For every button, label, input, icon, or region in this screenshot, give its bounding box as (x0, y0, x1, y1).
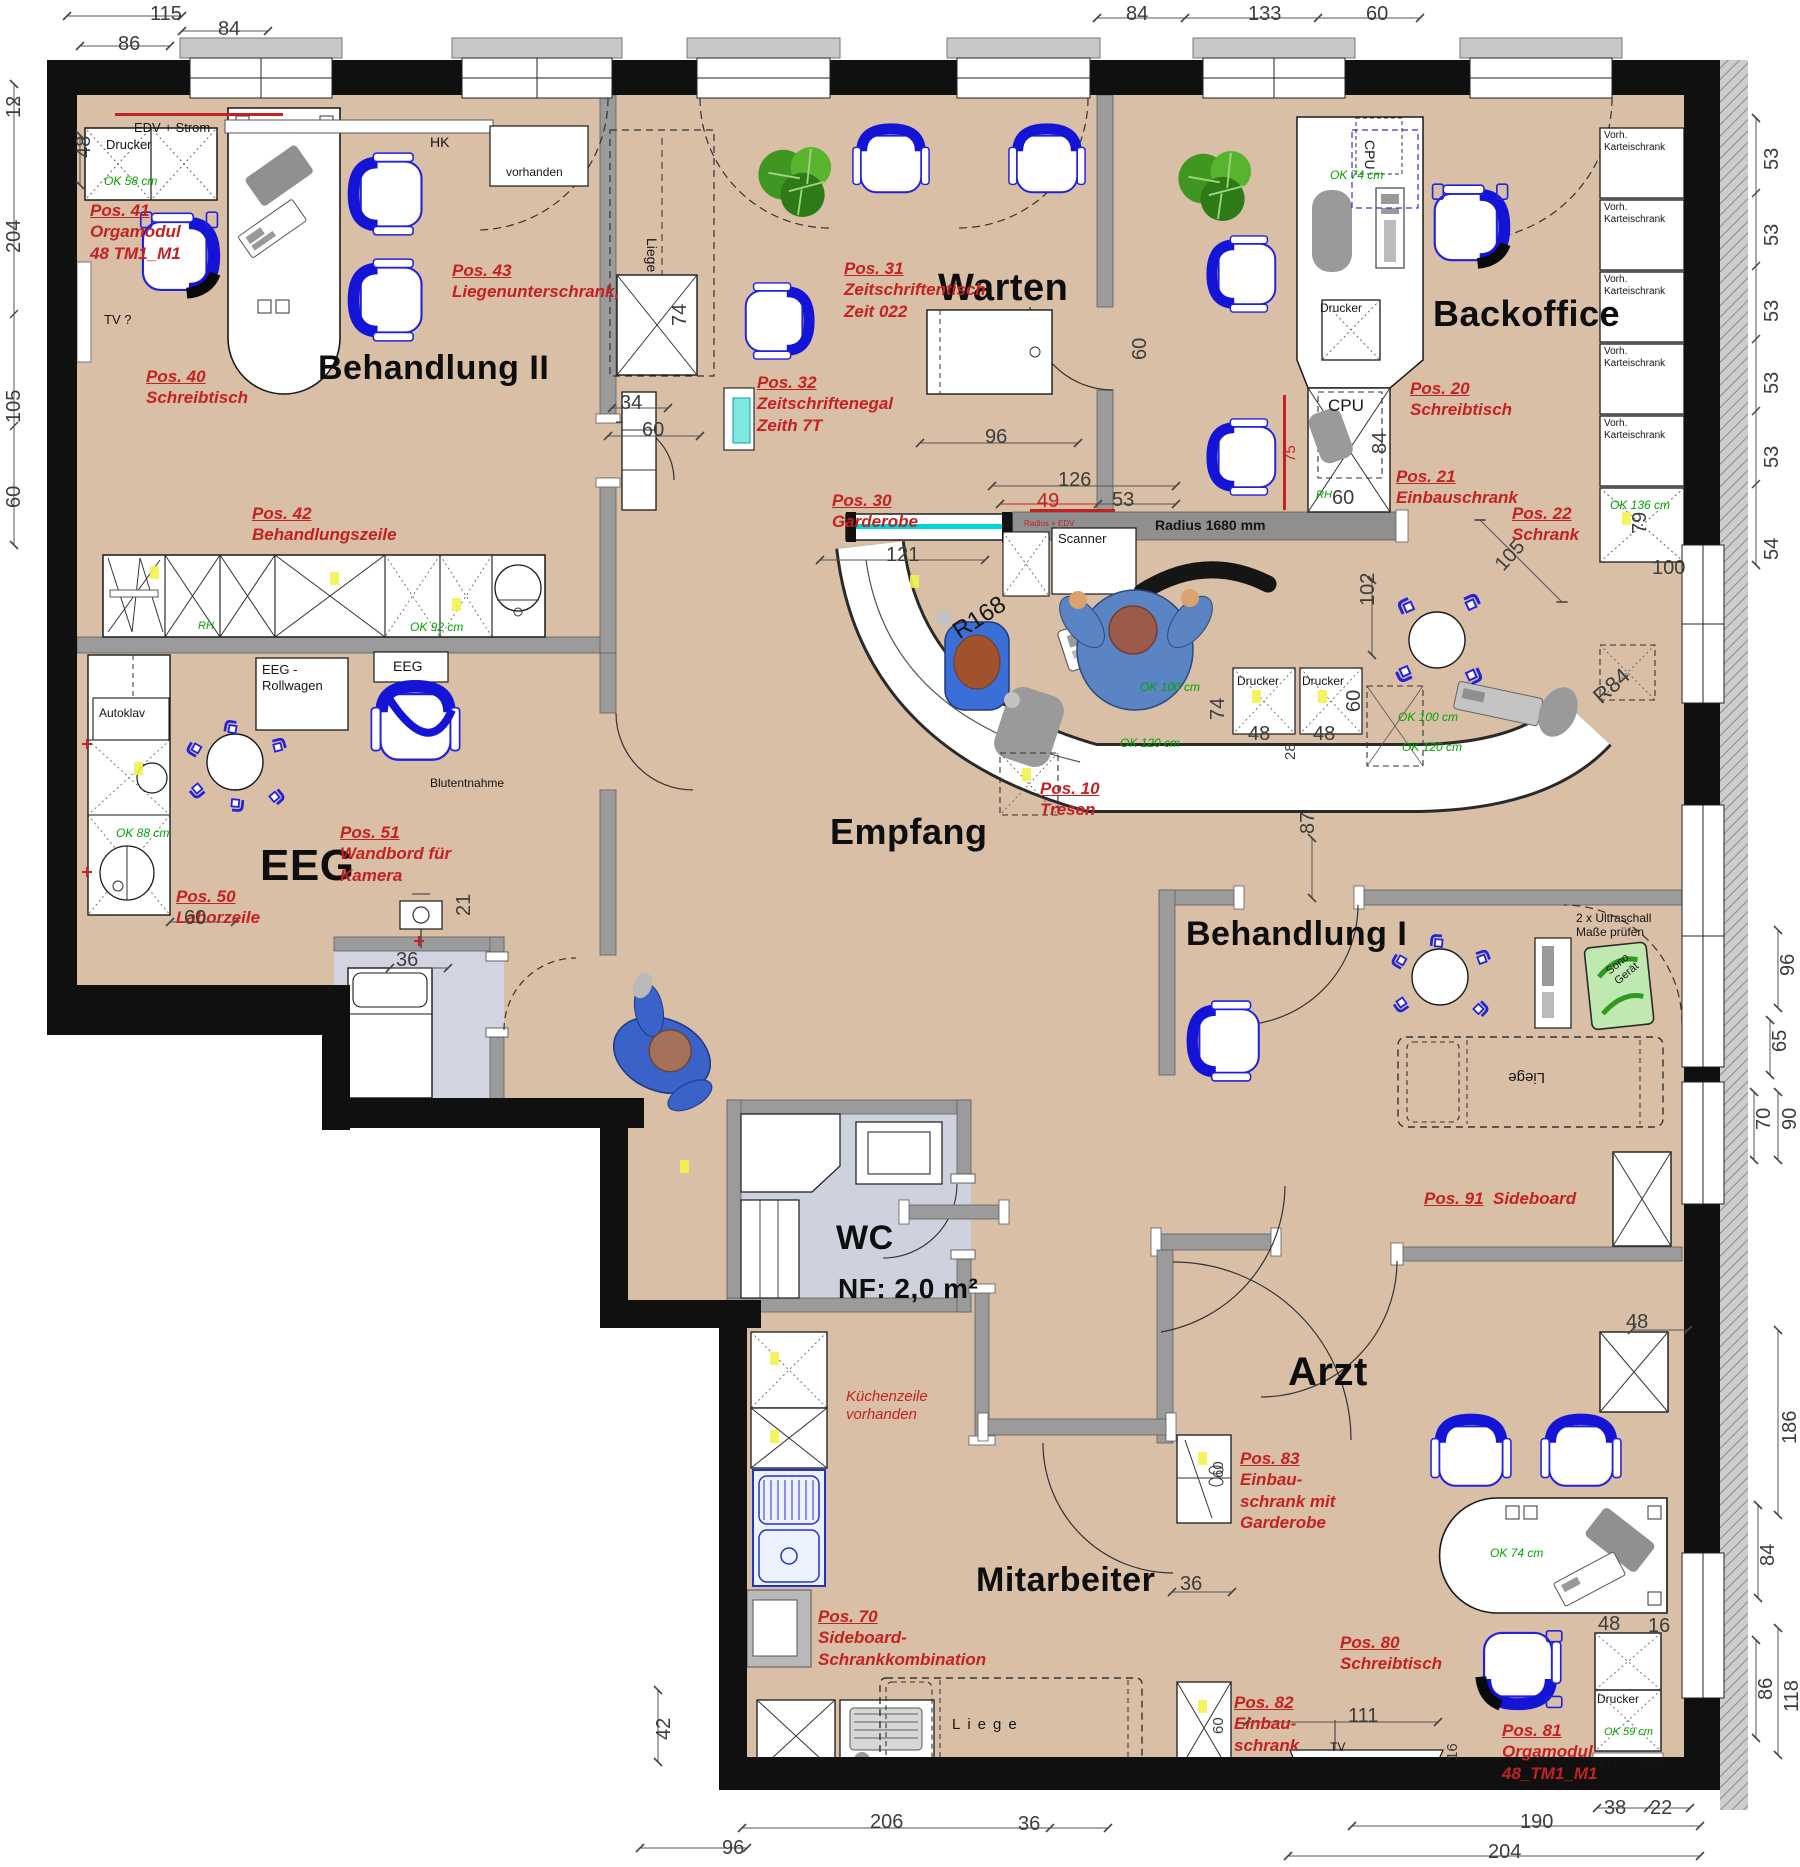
pos-label: Pos. 20Schreibtisch (1410, 378, 1512, 421)
dimension: 49 (1037, 489, 1059, 513)
annotation: OK 74 cm (1490, 1546, 1543, 1560)
room-label: WC (836, 1218, 894, 1259)
dimension: 84 (218, 17, 240, 41)
room-label: Behandlung I (1186, 914, 1407, 955)
annotation: Vorh. Karteischrank (1604, 418, 1665, 442)
annotation: Liege (643, 238, 660, 272)
dimension: 60 (642, 418, 664, 442)
dimension: 105 (2, 390, 26, 423)
annotation: vorhanden (506, 165, 563, 179)
annotation: Vorh. Karteischrank (1604, 274, 1665, 298)
dimension: 60 (1210, 1717, 1228, 1734)
dimension: 48 (1598, 1612, 1620, 1636)
room-label: Behandlung II (318, 348, 549, 389)
annotation: Drucker (1597, 1692, 1639, 1706)
pos-label: Pos. 82Einbau-schrank (1234, 1692, 1299, 1756)
dimension: 74 (668, 304, 692, 326)
annotation: OK 58 cm (104, 174, 157, 188)
dimension: 60 (1332, 486, 1354, 510)
dimension: 96 (1776, 954, 1800, 976)
dimension: 38 (1604, 1796, 1626, 1820)
dimension: 60 (1366, 2, 1388, 26)
annotation: Drucker (1320, 301, 1362, 315)
dimension: 133 (1248, 2, 1281, 26)
dimension: 115 (150, 2, 182, 26)
pos-label: Pos. 81Orgamodul48_TM1_M1 (1502, 1720, 1597, 1784)
annotation: EDV + Strom (1599, 1756, 1669, 1770)
annotation: 2 x Ultraschall Maße prüfen (1576, 911, 1651, 940)
dimension: 79 (1628, 512, 1652, 534)
room-label: Empfang (830, 810, 988, 853)
annotation: EDV + Strom (134, 120, 210, 136)
annotation: CPU (1361, 140, 1378, 170)
pos-label: Pos. 31ZeitschriftentischZeit 022 (844, 258, 986, 322)
dimension: 75 (1282, 445, 1300, 462)
pos-label: Pos. 80Schreibtisch (1340, 1632, 1442, 1675)
pos-label: Pos. 22Schrank (1512, 503, 1579, 546)
annotation: Autoklav (99, 706, 145, 720)
pos-label: Pos. 83Einbau-schrank mitGarderobe (1240, 1448, 1335, 1533)
annotation: Radius + EDV (1024, 519, 1074, 529)
pos-label: Pos. 70Sideboard-Schrankkombination (818, 1606, 986, 1670)
dimension: 12 (2, 96, 26, 118)
dimension: 204 (1488, 1840, 1521, 1864)
dimension: 90 (1778, 1108, 1800, 1130)
dimension: 34 (620, 391, 642, 415)
dimension: 86 (1754, 1678, 1778, 1700)
dimension: 16 (1648, 1614, 1670, 1638)
dimension: 60 (1128, 338, 1152, 360)
dimension: 53 (1760, 224, 1784, 246)
annotation: Küchenzeile vorhanden (846, 1388, 928, 1424)
annotation: RH (198, 620, 214, 633)
dimension: 48 (1313, 722, 1335, 746)
dimension: 53 (1760, 372, 1784, 394)
annotation: OK 100 cm (1140, 680, 1200, 694)
dimension: 70 (1752, 1108, 1776, 1130)
annotation: OK 100 cm (1398, 710, 1458, 724)
room-label: NF: 2,0 m² (838, 1272, 978, 1306)
dimension: 84 (1368, 432, 1392, 454)
dimension: 36 (1180, 1572, 1202, 1596)
dimension: 60 (2, 486, 26, 508)
dimension: 21 (452, 894, 476, 916)
dimension: 84 (1126, 2, 1148, 26)
annotation: Sono Gerät (1604, 950, 1642, 988)
pos-label: Pos. 43Liegenunterschrank, (452, 260, 619, 303)
room-label: Arzt (1288, 1348, 1368, 1396)
annotation: OK 88 cm (116, 826, 169, 840)
dimension: 42 (652, 1718, 676, 1740)
dimension: 126 (1058, 468, 1091, 492)
annotation: Vorh. Karteischrank (1604, 346, 1665, 370)
dimension: 53 (1760, 300, 1784, 322)
pos-label: Pos. 40Schreibtisch (146, 366, 248, 409)
dimension: 22 (1650, 1796, 1672, 1820)
pos-label: Pos. 21Einbauschrank (1396, 466, 1518, 509)
annotation: TV (1330, 1740, 1345, 1754)
annotation: OK 59 cm (1604, 1726, 1653, 1739)
annotation: OK 92 cm (410, 620, 463, 634)
dimension: 53 (1760, 446, 1784, 468)
dimension: 53 (1112, 488, 1134, 512)
pos-label: Pos. 10Tresen (1040, 778, 1100, 821)
annotation: Drucker (106, 137, 152, 153)
dimension: 54 (1760, 538, 1784, 560)
dimension: 16 (1444, 1743, 1462, 1760)
dimension: 60 (184, 906, 206, 930)
pos-label: Pos. 51Wandbord fürKamera (340, 822, 451, 886)
annotation: HK (430, 134, 449, 151)
dimension: 96 (722, 1836, 744, 1860)
annotation: Vorh. Karteischrank (1604, 202, 1665, 226)
dimension: 60 (1210, 1461, 1228, 1478)
annotation: Scanner (1058, 531, 1106, 547)
annotation: Liege (952, 1716, 1024, 1734)
pos-label: Pos. 41Orgamodul48 TM1_M1 (90, 200, 181, 264)
room-label: Mitarbeiter (976, 1560, 1155, 1601)
dimension: 102 (1356, 573, 1380, 606)
dimension: 48 (1248, 722, 1270, 746)
dimension: 65 (1768, 1030, 1792, 1052)
annotation: OK 74 cm (1330, 168, 1383, 182)
annotation: TV ? (104, 312, 131, 328)
annotation: OK 120 cm (1120, 736, 1180, 750)
dimension: 204 (2, 220, 26, 253)
pos-label: Pos. 30Garderobe (832, 490, 918, 533)
floorplan-canvas: Behandlung IIWartenBackofficeEmpfangEEGB… (0, 0, 1800, 1867)
dimension: 100 (1652, 556, 1685, 580)
dimension: 118 (1780, 1680, 1800, 1712)
dimension: 48 (1626, 1310, 1648, 1334)
annotation: EEG (393, 658, 423, 675)
dimension: 87 (1296, 812, 1320, 834)
annotation: Vorh. Karteischrank (1604, 130, 1665, 154)
annotation: Liege (1508, 1068, 1545, 1086)
dimension: 36 (1018, 1812, 1040, 1836)
annotation: CPU (1328, 396, 1364, 416)
dimension: 60 (1342, 690, 1366, 712)
pos-label: Pos. 32ZeitschriftenegalZeith 7T (757, 372, 893, 436)
dimension: 111 (1348, 1704, 1378, 1728)
room-label: Backoffice (1433, 292, 1620, 335)
pos-label: Pos. 42Behandlungszeile (252, 503, 397, 546)
annotation: R168 (948, 591, 1012, 646)
dimension: 121 (886, 543, 919, 567)
dimension: 86 (118, 32, 140, 56)
dimension: 74 (1206, 698, 1230, 720)
dimension: 96 (985, 425, 1007, 449)
dimension: 190 (1520, 1810, 1553, 1834)
label-layer: Behandlung IIWartenBackofficeEmpfangEEGB… (0, 0, 1800, 1867)
annotation: RH (1316, 489, 1332, 502)
annotation: Radius 1680 mm (1155, 517, 1266, 534)
dimension: 186 (1778, 1411, 1800, 1444)
annotation: Drucker (1302, 674, 1344, 688)
annotation: OK 120 cm (1402, 740, 1462, 754)
dimension: 84 (1756, 1544, 1780, 1566)
dimension: 48 (72, 136, 96, 158)
dimension: 36 (396, 948, 418, 972)
annotation: EEG - Rollwagen (262, 662, 323, 693)
dimension: R84 (1588, 663, 1636, 710)
annotation: Blutentnahme (430, 776, 504, 790)
annotation: Drucker (1237, 674, 1279, 688)
annotation: OK 136 cm (1610, 498, 1670, 512)
pos-label: Pos. 91 Sideboard (1424, 1188, 1576, 1209)
dimension: 206 (870, 1810, 903, 1834)
dimension: 53 (1760, 148, 1784, 170)
dimension: 28 (1282, 743, 1300, 760)
